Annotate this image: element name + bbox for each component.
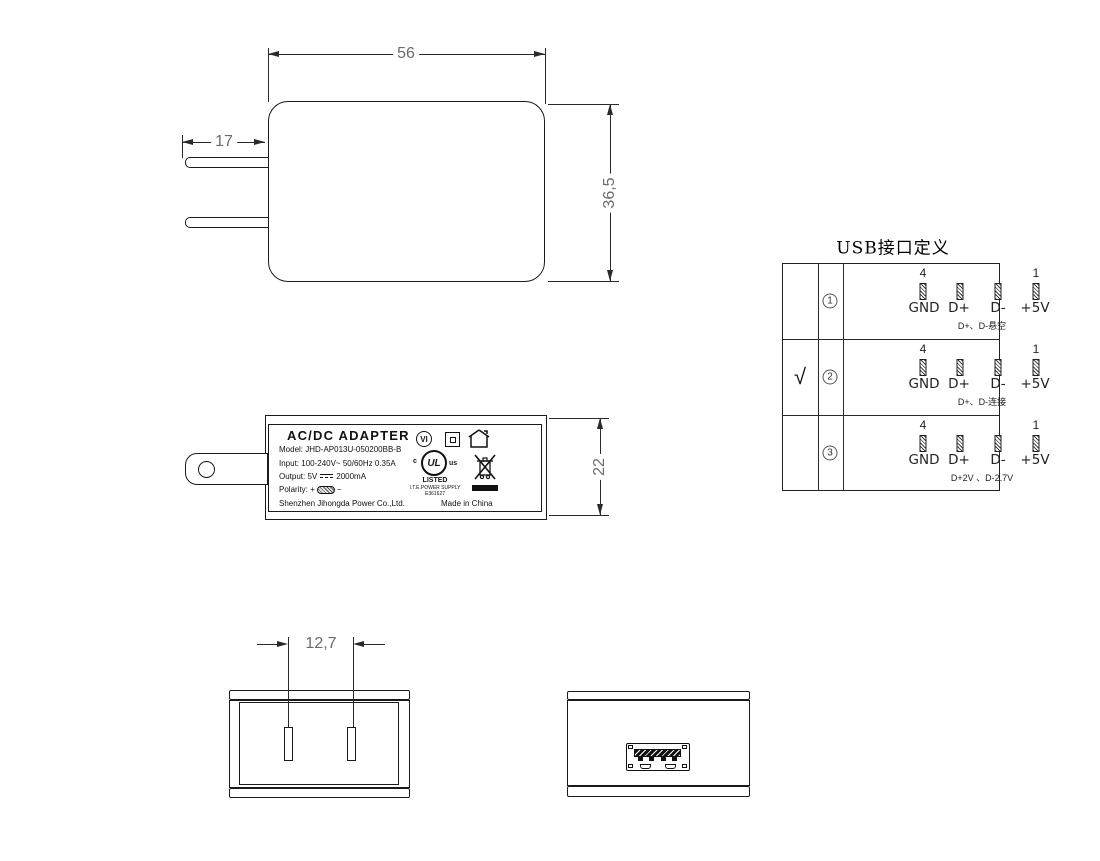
pin-icon bbox=[995, 283, 1002, 300]
pin-label-dminus: D- bbox=[990, 452, 1005, 468]
drawing-canvas: 56 17 36,5 AC/DC ADAPTER Model: JHD-AP01… bbox=[0, 0, 1100, 861]
weee-bin-icon bbox=[473, 453, 497, 483]
dim-height-text: 36,5 bbox=[601, 173, 619, 212]
usb-port-corner-tab bbox=[628, 745, 633, 749]
ul-file-text: E361627 bbox=[425, 491, 445, 497]
dc-symbol-icon bbox=[320, 474, 333, 480]
plug-face-inner bbox=[239, 702, 399, 785]
dim-pin-length-text: 17 bbox=[211, 133, 237, 151]
class-ii-icon bbox=[445, 432, 460, 447]
extension-line bbox=[548, 281, 619, 282]
label-model: Model: JHD-AP013U-050200BB-B bbox=[279, 445, 401, 454]
ul-listed-text: LISTED bbox=[423, 477, 448, 484]
label-manufacturer: Shenzhen Jihongda Power Co.,Ltd. bbox=[279, 499, 405, 508]
extension-line bbox=[288, 637, 289, 727]
usb-contact bbox=[672, 757, 677, 761]
extension-line bbox=[353, 637, 354, 727]
extension-line bbox=[545, 48, 546, 104]
pin-label-gnd: GND bbox=[909, 376, 940, 392]
pin-label-dplus: D+ bbox=[948, 376, 970, 392]
label-output-prefix: Output: 5V bbox=[279, 472, 317, 481]
usb-port-corner-tab bbox=[682, 745, 687, 749]
usb-contact bbox=[661, 757, 666, 761]
arrowhead bbox=[254, 139, 265, 145]
dim-side-height-text: 22 bbox=[591, 454, 609, 480]
pin-icon bbox=[957, 283, 964, 300]
usb-face-top-strip bbox=[567, 691, 750, 700]
extension-line bbox=[549, 515, 609, 516]
prong-slot-right bbox=[347, 727, 356, 761]
polarity-minus: − bbox=[337, 485, 342, 494]
dim-pin-spacing-text: 12,7 bbox=[301, 635, 340, 653]
label-title: AC/DC ADAPTER bbox=[287, 428, 410, 443]
arrowhead bbox=[607, 104, 613, 115]
table-row: 1 4 1 GND D+ D- +5V D+、D-悬空 bbox=[782, 263, 1000, 339]
arrowhead bbox=[534, 51, 545, 57]
pin-label-5v: +5V bbox=[1020, 300, 1049, 316]
usb-contact bbox=[638, 757, 643, 761]
arrowhead bbox=[268, 51, 279, 57]
arrowhead bbox=[607, 270, 613, 281]
row-note: D+2V 、D-2.7V bbox=[951, 471, 1013, 484]
plug-face-top-strip bbox=[229, 690, 410, 700]
pin-number-4: 4 bbox=[920, 418, 927, 432]
plug-pin-bottom bbox=[185, 217, 269, 228]
pin-number-1: 1 bbox=[1033, 266, 1040, 280]
usb-contact bbox=[649, 757, 654, 761]
pin-label-5v: +5V bbox=[1020, 452, 1049, 468]
usb-port-corner-tab bbox=[628, 764, 633, 768]
table-row: 3 4 1 GND D+ D- +5V D+2V 、D-2.7V bbox=[782, 415, 1000, 491]
pin-number-4: 4 bbox=[920, 266, 927, 280]
pin-label-gnd: GND bbox=[909, 300, 940, 316]
row-selected-mark: √ bbox=[794, 364, 806, 390]
pin-label-dminus: D- bbox=[990, 300, 1005, 316]
label-output-suffix: 2000mA bbox=[336, 472, 366, 481]
label-output: Output: 5V2000mA bbox=[279, 472, 366, 481]
label-polarity: Polarity: +− bbox=[279, 485, 341, 494]
pin-icon bbox=[1033, 435, 1040, 452]
pin-label-dplus: D+ bbox=[948, 300, 970, 316]
pin-icon bbox=[957, 359, 964, 376]
ul-letters: UL bbox=[427, 458, 440, 469]
pin-icon bbox=[995, 435, 1002, 452]
usb-notch bbox=[640, 764, 651, 769]
label-made-in: Made in China bbox=[441, 499, 493, 508]
pin-label-dplus: D+ bbox=[948, 452, 970, 468]
arrowhead bbox=[353, 641, 364, 647]
plug-face-bottom-strip bbox=[229, 788, 410, 798]
pin-icon bbox=[920, 283, 927, 300]
dim-width-text: 56 bbox=[393, 45, 419, 63]
arrowhead bbox=[597, 418, 603, 429]
usb-face-bottom-strip bbox=[567, 786, 750, 797]
efficiency-vi-icon: VI bbox=[416, 431, 432, 447]
adapter-body-front bbox=[268, 101, 545, 282]
pin-icon bbox=[920, 359, 927, 376]
row-number-circled: 1 bbox=[823, 294, 838, 309]
usb-tongue bbox=[634, 749, 681, 757]
arrowhead bbox=[597, 504, 603, 515]
pin-icon bbox=[957, 435, 964, 452]
rating-label: AC/DC ADAPTER Model: JHD-AP013U-050200BB… bbox=[268, 424, 542, 512]
dimension-line-spacing bbox=[364, 644, 385, 645]
pin-number-4: 4 bbox=[920, 342, 927, 356]
usb-polarity-icon bbox=[317, 486, 335, 494]
dimension-line-spacing bbox=[257, 644, 278, 645]
row-number-circled: 3 bbox=[823, 446, 838, 461]
weee-bar-icon bbox=[472, 485, 498, 491]
plug-pin-top bbox=[185, 157, 269, 168]
arrowhead bbox=[182, 139, 193, 145]
label-input: Input: 100-240V~ 50/60Hz 0.35A bbox=[279, 459, 396, 468]
indoor-use-house-icon bbox=[467, 428, 491, 448]
row-note: D+、D-连接 bbox=[958, 395, 1006, 408]
usb-notch bbox=[665, 764, 676, 769]
usb-a-port bbox=[626, 743, 690, 771]
pin-label-5v: +5V bbox=[1020, 376, 1049, 392]
blade-hole bbox=[198, 461, 215, 478]
table-row: √ 2 4 1 GND D+ D- +5V D+、D-连接 bbox=[782, 339, 1000, 415]
pin-label-dminus: D- bbox=[990, 376, 1005, 392]
pin-label-gnd: GND bbox=[909, 452, 940, 468]
ul-us-text: us bbox=[449, 460, 457, 467]
usb-port-corner-tab bbox=[682, 764, 687, 768]
pin-number-1: 1 bbox=[1033, 418, 1040, 432]
ul-c-text: c bbox=[413, 458, 417, 465]
pin-icon bbox=[920, 435, 927, 452]
pin-icon bbox=[1033, 359, 1040, 376]
efficiency-vi-text: VI bbox=[420, 435, 428, 444]
polarity-plus: + bbox=[310, 485, 315, 494]
pin-icon bbox=[995, 359, 1002, 376]
pin-icon bbox=[1033, 283, 1040, 300]
ul-mark-icon: UL bbox=[421, 450, 447, 476]
prong-slot-left bbox=[284, 727, 293, 761]
label-polarity-word: Polarity: bbox=[279, 485, 308, 494]
arrowhead bbox=[277, 641, 288, 647]
usb-table-title: USB接口定义 bbox=[836, 234, 949, 259]
pin-number-1: 1 bbox=[1033, 342, 1040, 356]
row-note: D+、D-悬空 bbox=[958, 319, 1006, 332]
row-number-circled: 2 bbox=[823, 370, 838, 385]
